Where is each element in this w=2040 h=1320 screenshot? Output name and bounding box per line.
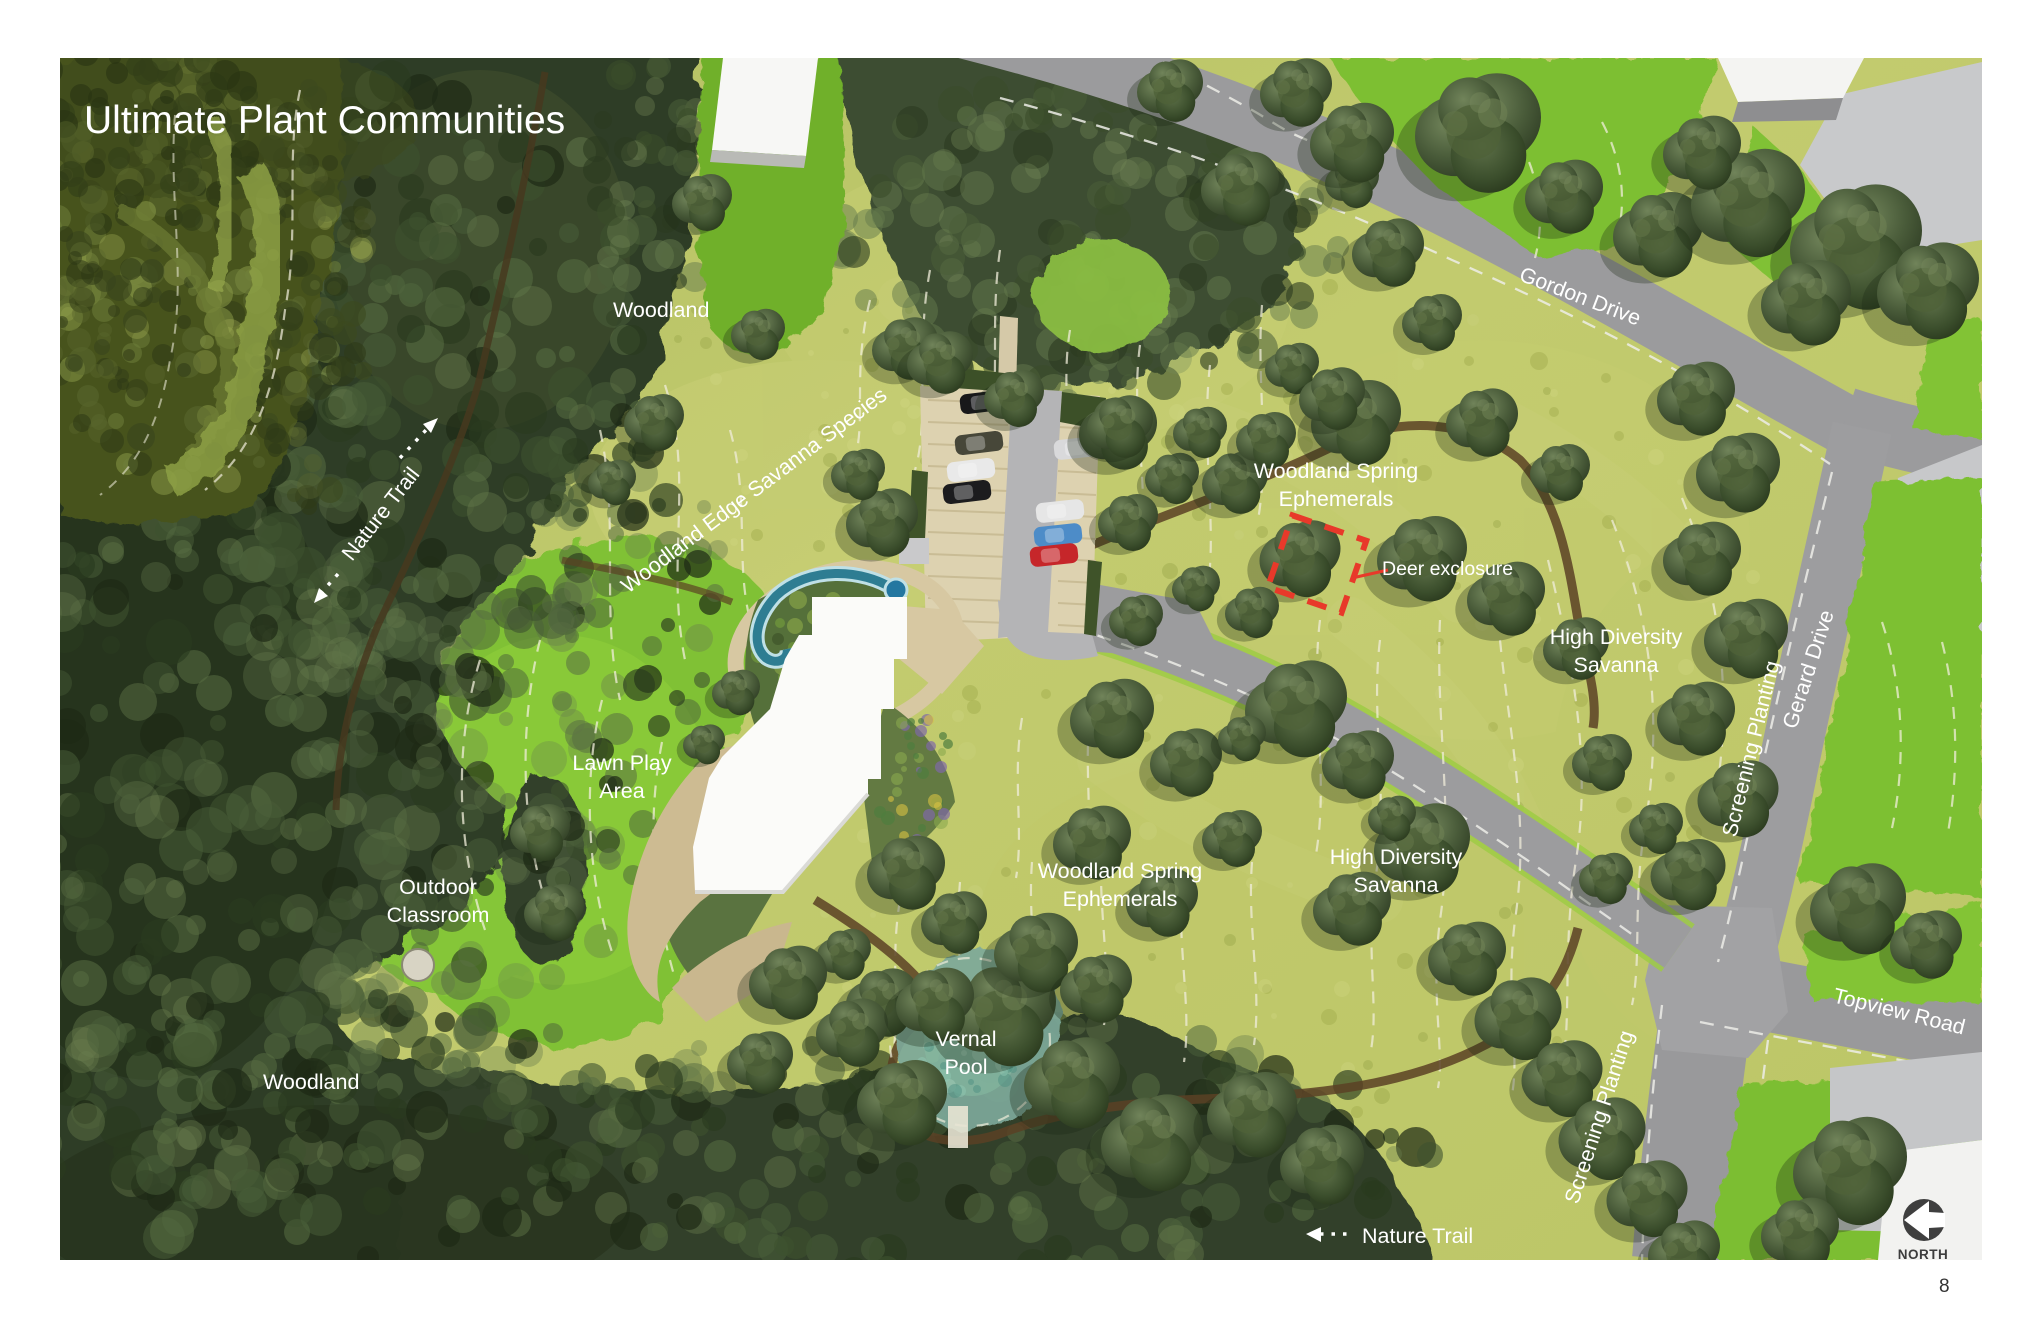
svg-text:Vernal: Vernal <box>936 1027 997 1051</box>
svg-text:Ephemerals: Ephemerals <box>1063 887 1178 911</box>
svg-text:NORTH: NORTH <box>1898 1247 1949 1262</box>
svg-text:High Diversity: High Diversity <box>1550 625 1683 649</box>
svg-text:Classroom: Classroom <box>387 903 490 927</box>
svg-text:High Diversity: High Diversity <box>1330 845 1463 869</box>
svg-text:Lawn Play: Lawn Play <box>572 751 671 775</box>
svg-text:Savanna: Savanna <box>1354 873 1439 897</box>
svg-text:8: 8 <box>1939 1276 1950 1297</box>
svg-text:Pool: Pool <box>944 1055 987 1079</box>
svg-text:Area: Area <box>599 779 644 803</box>
svg-text:Ephemerals: Ephemerals <box>1279 487 1394 511</box>
svg-text:Nature Trail: Nature Trail <box>1362 1224 1473 1248</box>
svg-text:Savanna: Savanna <box>1574 653 1659 677</box>
svg-text:Woodland: Woodland <box>613 298 709 322</box>
svg-text:Woodland Spring: Woodland Spring <box>1254 459 1419 483</box>
svg-text:Woodland: Woodland <box>263 1070 359 1094</box>
svg-text:Outdoor: Outdoor <box>399 875 477 899</box>
svg-text:Ultimate Plant Communities: Ultimate Plant Communities <box>84 99 565 142</box>
svg-text:Woodland Spring: Woodland Spring <box>1038 859 1203 883</box>
svg-text:Deer exclosure: Deer exclosure <box>1382 558 1513 580</box>
